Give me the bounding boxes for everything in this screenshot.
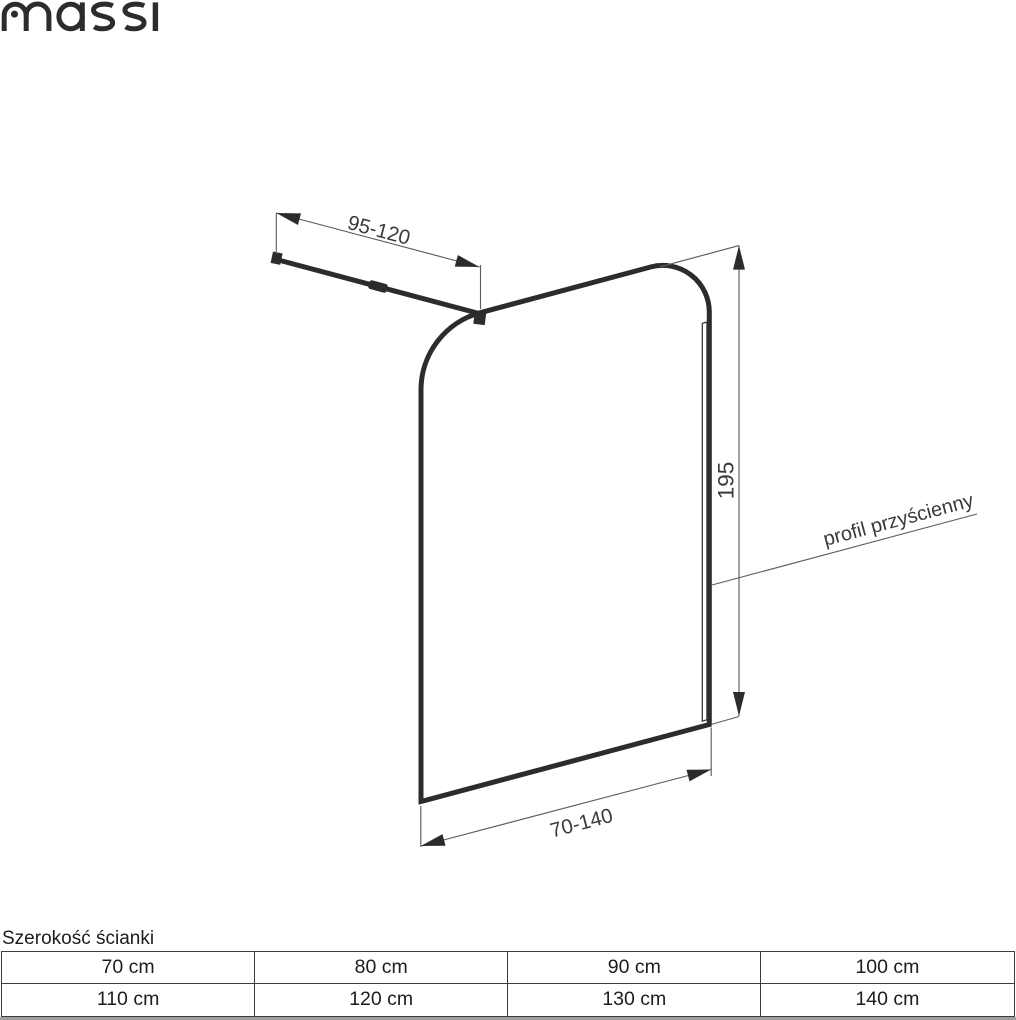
svg-text:195: 195 <box>714 462 739 500</box>
svg-text:95-120: 95-120 <box>345 211 413 250</box>
